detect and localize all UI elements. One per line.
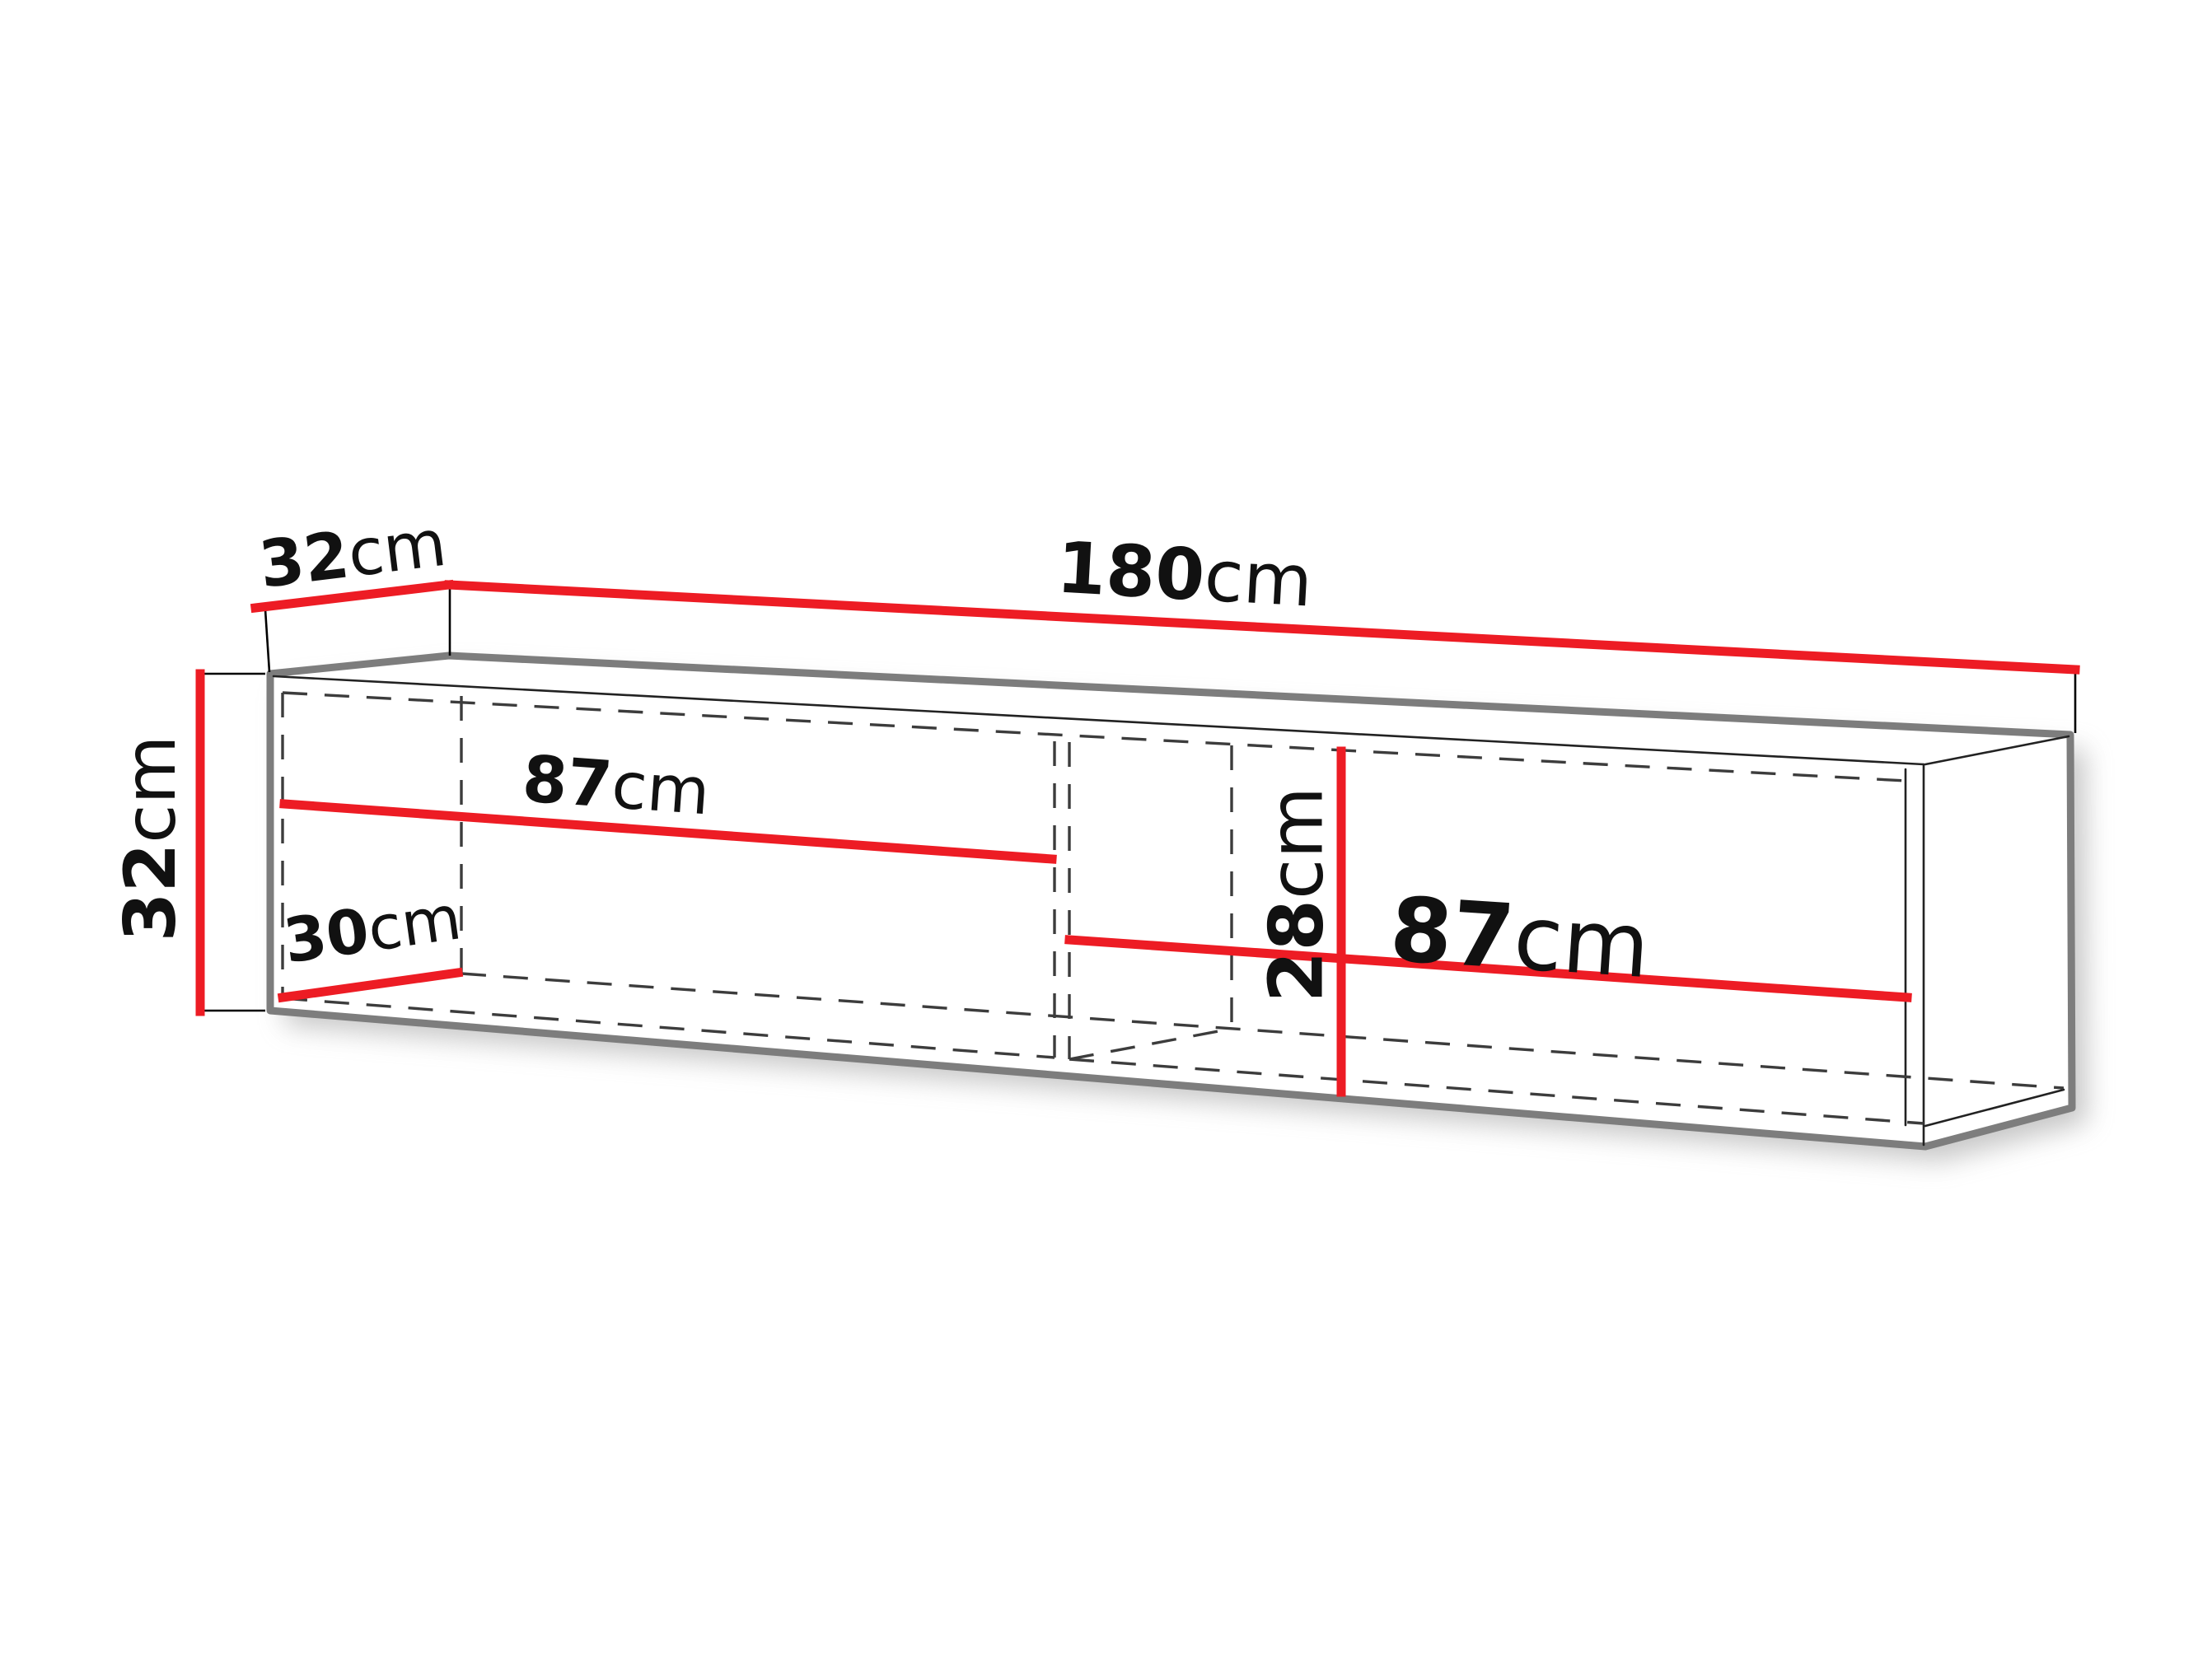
tick-top-depth-left <box>265 609 269 672</box>
label-interior-height: 28cm <box>1254 787 1340 1002</box>
label-right-compartment-width: 87cm <box>1387 879 1653 999</box>
label-left-compartment-width: 87cm <box>520 742 712 829</box>
cabinet-dimension-diagram: 32cm 180cm 32cm 87cm 30cm 28cm 87cm <box>0 0 2212 1658</box>
label-left-height: 32cm <box>110 736 192 942</box>
label-top-width: 180cm <box>1055 527 1315 624</box>
diagram-page: 32cm 180cm 32cm 87cm 30cm 28cm 87cm <box>0 0 2212 1658</box>
cabinet-silhouette <box>270 656 2072 1147</box>
